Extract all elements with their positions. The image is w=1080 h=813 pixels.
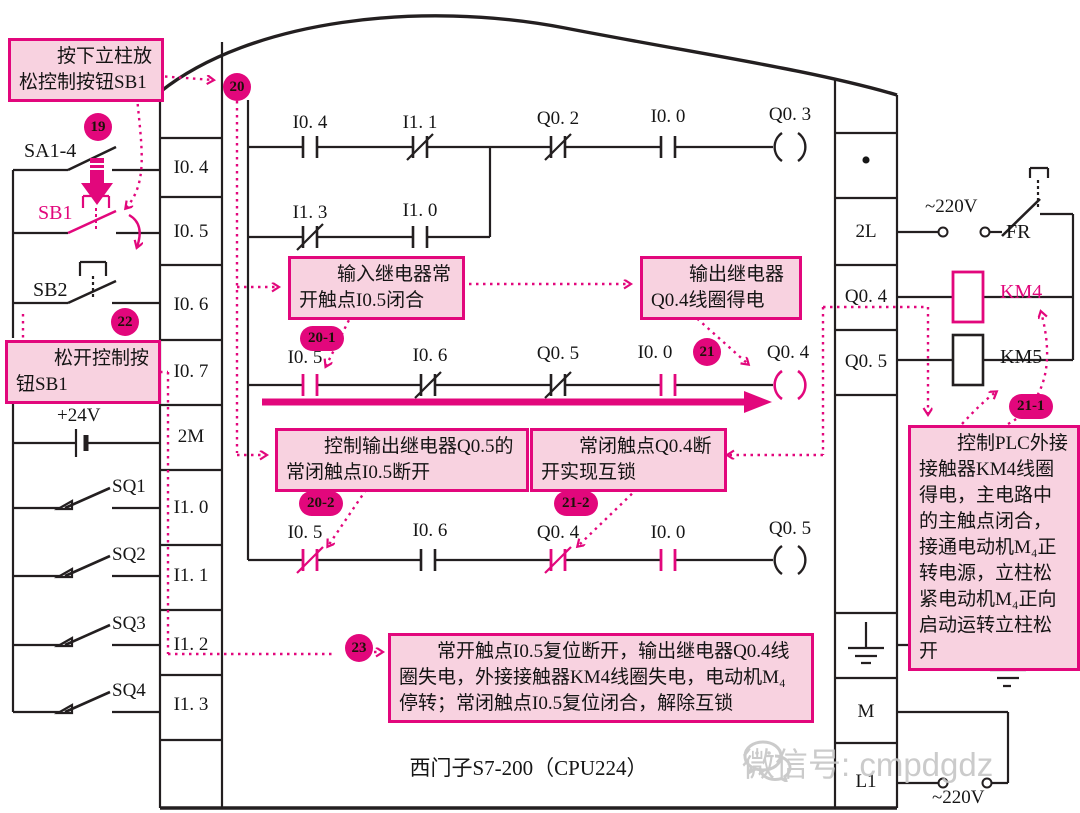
- output-terminal-2l: 2L: [836, 221, 896, 243]
- step-badge-20-2: 20-2: [299, 491, 343, 516]
- rung1-contact-label: I0. 0: [630, 106, 706, 128]
- contactor-label-km5: KM5: [1000, 346, 1042, 368]
- coil-km4: [953, 272, 983, 322]
- callout-reset-sequence: 常开触点I0.5复位断开，输出继电器Q0.4线圈失电，外接接触器KM4线圈失电，…: [388, 633, 814, 723]
- rung1-contact-label: Q0. 2: [520, 108, 596, 130]
- rung3-contact-label: I0. 0: [630, 522, 706, 544]
- output-terminal-q0-4: Q0. 4: [836, 286, 896, 308]
- ground-symbol-external: [990, 670, 1026, 686]
- step-badge-22: 22: [111, 308, 139, 336]
- limit-switch-label-sq3: SQ3: [112, 614, 146, 635]
- output-terminal-q0-5: Q0. 5: [836, 351, 896, 373]
- rung2-contact-label: I0. 0: [617, 342, 693, 364]
- contact-no-i1-0: [413, 226, 427, 248]
- watermark: 微信号: cmpdgdz: [742, 738, 993, 786]
- rung3-contact-label: Q0. 4: [520, 522, 596, 544]
- rung1-contact-label: I1. 1: [382, 112, 458, 134]
- switch-label-sa1-4: SA1-4: [24, 140, 76, 162]
- step-badge-23: 23: [345, 634, 373, 662]
- callout-km4-action: 控制PLC外接接触器KM4线圈得电，主电路中的主触点闭合，接通电动机M₄正转电源…: [908, 425, 1080, 671]
- coil-q0-5: [775, 546, 806, 574]
- rung3-contact-label: I0. 6: [392, 520, 468, 542]
- ground-symbol-terminal: [848, 622, 884, 663]
- input-terminal-i0-5: I0. 5: [161, 221, 221, 243]
- ac-supply-label-top: ~220V: [925, 197, 978, 218]
- input-terminal-i0-4: I0. 4: [161, 157, 221, 179]
- callout-q05-nc-open: 控制输出继电器Q0.5的常闭触点I0.5断开: [275, 428, 529, 492]
- input-terminal-i1-3: I1. 3: [161, 694, 221, 716]
- rung2-contact-label: I0. 6: [392, 345, 468, 367]
- callout-input-relay-close: 输入继电器常开触点I0.5闭合: [288, 256, 465, 320]
- rung2-coil-label: Q0. 4: [750, 342, 826, 364]
- step-badge-19: 19: [84, 113, 112, 141]
- plc-wiring-diagram: I0. 4 I0. 5 I0. 6 I0. 7 2M I1. 0 I1. 1 I…: [0, 0, 1080, 813]
- coil-q0-3: [775, 133, 806, 161]
- contact-no-i0-0-active2: [661, 549, 675, 571]
- button-label-sb2: SB2: [33, 279, 67, 301]
- contact-no-i0-4: [303, 136, 317, 158]
- ac-supply-label-bottom: ~220V: [932, 788, 985, 809]
- contact-no-i0-0-active: [661, 374, 675, 396]
- rung1-coil-label: Q0. 3: [752, 104, 828, 126]
- limit-switch-label-sq1: SQ1: [112, 477, 146, 498]
- output-terminal-m: M: [836, 701, 896, 723]
- rung3-coil-label: Q0. 5: [752, 518, 828, 540]
- step-badge-20-1: 20-1: [300, 326, 344, 351]
- contactor-label-km4: KM4: [1000, 281, 1042, 303]
- step-badge-21-1: 21-1: [1009, 394, 1053, 419]
- callout-release-sb1: 松开控制按钮SB1: [5, 340, 161, 404]
- input-terminal-i1-2: I1. 2: [161, 634, 221, 656]
- input-terminal-i1-0: I1. 0: [161, 497, 221, 519]
- contact-no-i0-6: [421, 549, 435, 571]
- power-flow-arrow: [262, 391, 772, 413]
- output-terminal-dot: •: [836, 144, 896, 178]
- coil-km5: [953, 335, 983, 385]
- step-badge-21: 21: [693, 338, 721, 366]
- rung2-contact-label: Q0. 5: [520, 343, 596, 365]
- coil-q0-4-active: [775, 371, 806, 399]
- input-terminal-2m: 2M: [161, 426, 221, 448]
- callout-press-sb1: 按下立柱放松控制按钮SB1: [8, 38, 164, 102]
- relay-label-fr: FR: [1006, 221, 1030, 243]
- limit-switch-label-sq2: SQ2: [112, 545, 146, 566]
- rung3-contact-label: I0. 5: [267, 522, 343, 544]
- input-terminal-i0-7: I0. 7: [161, 361, 221, 383]
- step-badge-20: 20: [223, 73, 251, 101]
- branch-contact-label: I1. 3: [272, 202, 348, 224]
- rung1-contact-label: I0. 4: [272, 112, 348, 134]
- branch-contact-label: I1. 0: [382, 200, 458, 222]
- button-label-sb1: SB1: [38, 202, 72, 224]
- contact-no-i0-5-active: [303, 374, 317, 396]
- contact-no-i0-0: [661, 136, 675, 158]
- input-terminal-i1-1: I1. 1: [161, 565, 221, 587]
- callout-output-relay-energize: 输出继电器Q0.4线圈得电: [640, 256, 802, 320]
- callout-q04-interlock: 常闭触点Q0.4断开实现互锁: [530, 428, 727, 492]
- limit-switch-label-sq4: SQ4: [112, 681, 146, 702]
- step-badge-21-2: 21-2: [554, 491, 598, 516]
- input-terminal-i0-6: I0. 6: [161, 294, 221, 316]
- supply-label-24v: +24V: [57, 406, 100, 427]
- wechat-icon: [742, 738, 794, 782]
